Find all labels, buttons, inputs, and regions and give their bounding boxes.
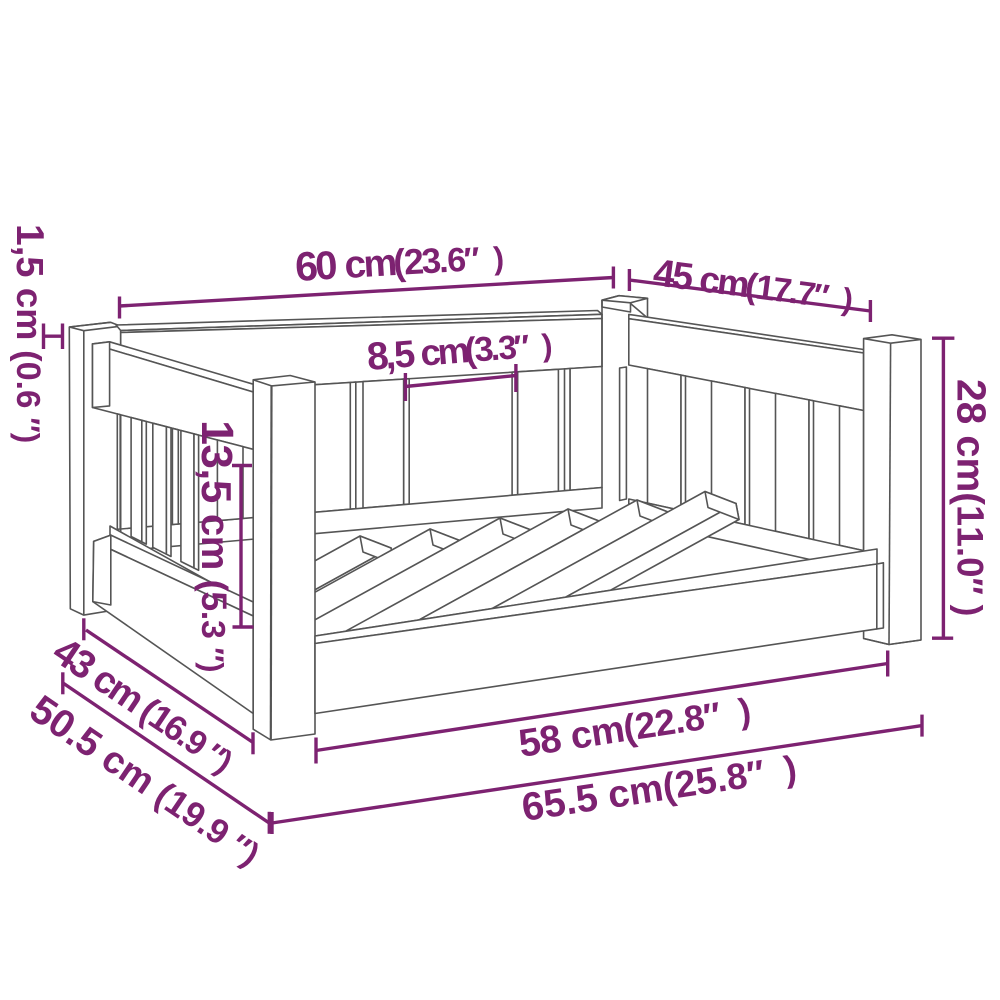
svg-text:8: 8 [949,402,995,425]
svg-text:(: ( [9,350,47,362]
svg-text:5: 5 [392,333,416,377]
svg-text:,: , [8,246,51,257]
svg-text:): ) [195,662,230,672]
svg-text:5: 5 [194,591,234,611]
svg-text:″: ″ [950,577,991,594]
svg-text:1: 1 [949,505,991,526]
svg-text:″: ″ [195,647,231,662]
svg-text:0: 0 [9,362,47,381]
svg-text:m: m [193,536,236,571]
svg-text:): ) [950,605,989,617]
svg-text:″: ″ [10,417,46,432]
svg-text:): ) [492,240,505,277]
svg-text:.: . [950,547,991,557]
svg-text:5: 5 [193,480,240,503]
svg-text:6: 6 [9,390,46,408]
svg-text:1: 1 [950,526,992,547]
svg-text:(: ( [949,492,992,505]
svg-text:m: m [9,308,50,340]
svg-text:): ) [10,433,45,443]
svg-text:m: m [949,457,992,492]
svg-text:″: ″ [463,241,481,279]
svg-text:c: c [193,514,237,536]
svg-text:3: 3 [194,620,232,639]
svg-text:.: . [9,381,46,390]
svg-text:0: 0 [950,557,991,577]
svg-text:0: 0 [314,244,339,289]
svg-text:c: c [9,288,50,308]
svg-text:5: 5 [8,256,50,277]
svg-text:1: 1 [192,420,243,445]
svg-text:1: 1 [8,224,51,246]
svg-text:″: ″ [512,327,531,365]
svg-text:c: c [949,435,993,457]
svg-text:,: , [192,468,239,480]
svg-text:3: 3 [192,445,241,469]
svg-text:.: . [194,611,232,621]
svg-text:2: 2 [949,379,995,402]
